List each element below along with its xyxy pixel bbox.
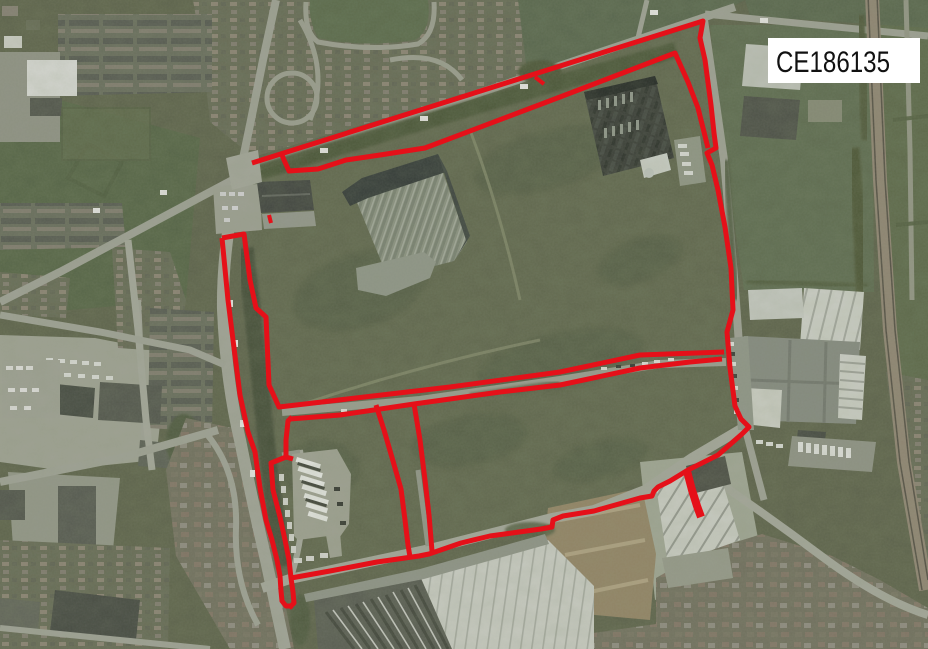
svg-text:CE186135: CE186135: [776, 46, 890, 79]
